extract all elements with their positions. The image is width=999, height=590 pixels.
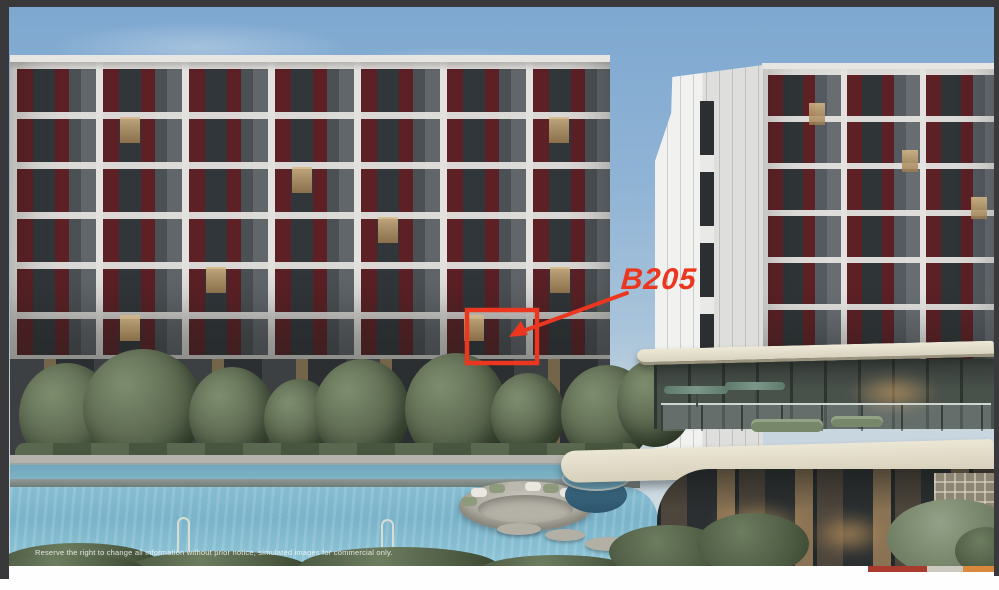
umbrella	[725, 382, 785, 390]
accent-bar-red	[868, 566, 927, 572]
stepping-stone	[545, 529, 585, 541]
umbrella	[664, 386, 728, 394]
lounge-pillow	[525, 482, 541, 491]
lit-window	[809, 103, 825, 125]
deck-glass-railing	[661, 403, 991, 431]
lounge-pillow	[471, 488, 487, 497]
slide: Reserve the right to change all informat…	[0, 0, 999, 590]
lounge-pillow	[543, 484, 559, 493]
left-building	[10, 55, 610, 367]
clubhouse-interior-light	[809, 512, 889, 556]
slide-bottom-margin	[0, 566, 999, 590]
render-photo: Reserve the right to change all informat…	[9, 7, 994, 566]
lit-window	[971, 197, 987, 219]
viewer-frame-left	[0, 0, 9, 579]
sunken-lounge-floor	[478, 495, 573, 523]
viewer-frame-top	[0, 0, 999, 7]
lit-window	[292, 167, 312, 193]
lit-window	[120, 315, 140, 341]
stepping-stone	[497, 523, 541, 535]
lounge-pillow	[489, 484, 505, 493]
lit-window	[550, 267, 570, 293]
lounge-pillow	[461, 497, 477, 506]
footer-accent-bar	[868, 566, 999, 572]
lounge-pillow	[507, 482, 523, 491]
lit-window	[549, 117, 569, 143]
pool-ladder	[177, 517, 190, 551]
deck-sofa	[751, 419, 823, 432]
lit-window	[902, 150, 918, 172]
lit-window	[464, 315, 484, 341]
lit-window	[378, 217, 398, 243]
deck-sofa	[831, 416, 883, 427]
lit-window	[120, 117, 140, 143]
lit-window	[206, 267, 226, 293]
reflecting-pool	[10, 463, 632, 479]
accent-bar-gray	[927, 566, 963, 572]
disclaimer-text: Reserve the right to change all informat…	[35, 548, 393, 557]
agave-plant	[697, 513, 809, 566]
right-building	[762, 63, 994, 363]
viewer-frame-right	[994, 0, 999, 576]
